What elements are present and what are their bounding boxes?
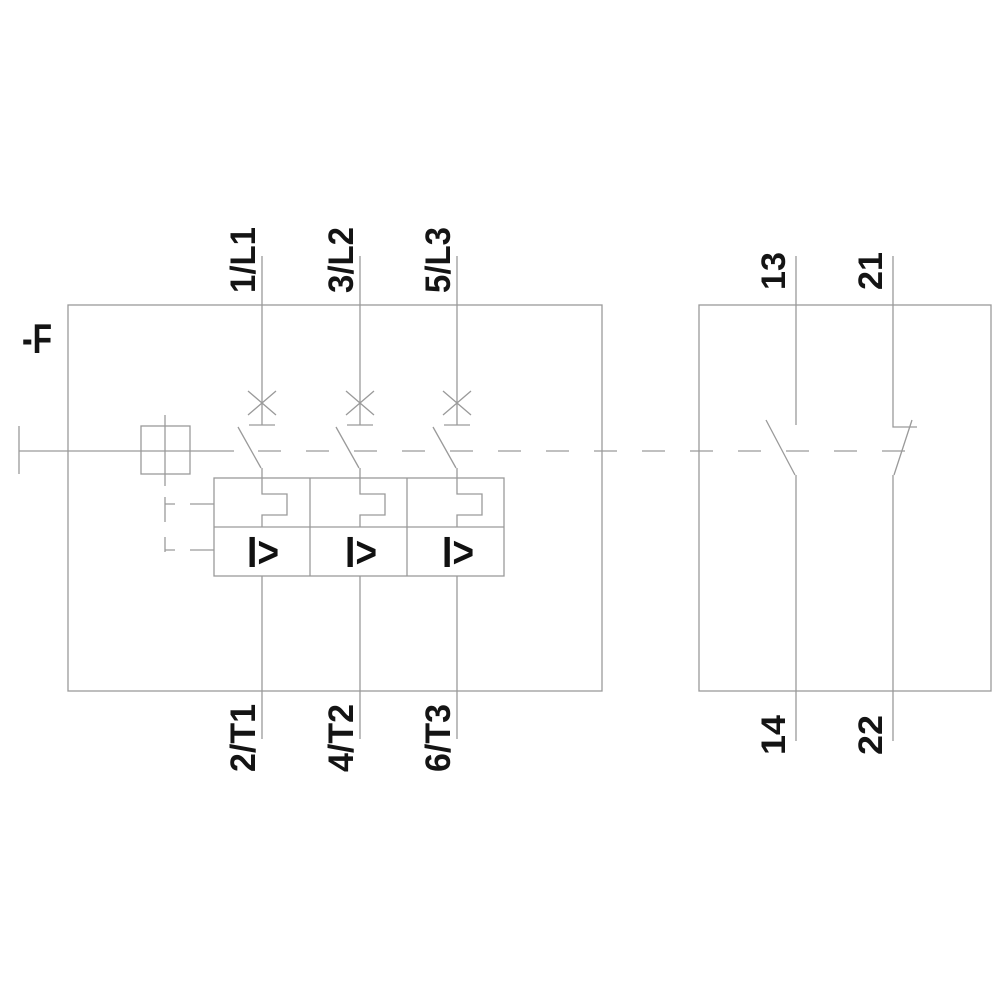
pole-3-symbol xyxy=(433,256,482,739)
schematic-page: -F 1/L1 3/L2 5/L3 2/T1 4/T2 6/T3 13 21 1… xyxy=(0,0,1000,1000)
terminal-label-21: 21 xyxy=(852,252,890,290)
device-designation-label: -F xyxy=(22,315,52,362)
terminal-label-3L2: 3/L2 xyxy=(322,227,361,293)
pole-2-symbol xyxy=(336,256,385,739)
terminal-label-5L3: 5/L3 xyxy=(419,227,458,293)
terminal-label-14: 14 xyxy=(755,715,793,755)
terminal-label-1L1: 1/L1 xyxy=(224,227,263,293)
terminal-label-13: 13 xyxy=(755,252,793,290)
pole-1-symbol xyxy=(238,256,287,739)
aux-nc-contact-symbol xyxy=(893,256,917,741)
overcurrent-trip-symbol-pole2: I> xyxy=(345,528,377,577)
aux-no-contact-symbol xyxy=(766,256,796,741)
aux-enclosure-outline xyxy=(699,305,991,691)
terminal-label-22: 22 xyxy=(852,715,890,755)
terminal-label-4T2: 4/T2 xyxy=(322,704,361,772)
terminal-label-6T3: 6/T3 xyxy=(419,704,458,772)
terminal-label-2T1: 2/T1 xyxy=(224,704,263,772)
main-enclosure-outline xyxy=(68,305,602,691)
overcurrent-trip-symbol-pole3: I> xyxy=(442,528,474,577)
manual-operator-lead xyxy=(19,426,234,474)
overcurrent-trip-symbol-pole1: I> xyxy=(247,528,279,577)
circuit-breaker-schematic: -F 1/L1 3/L2 5/L3 2/T1 4/T2 6/T3 13 21 1… xyxy=(0,0,1000,1000)
schematic-line-art xyxy=(19,256,991,741)
